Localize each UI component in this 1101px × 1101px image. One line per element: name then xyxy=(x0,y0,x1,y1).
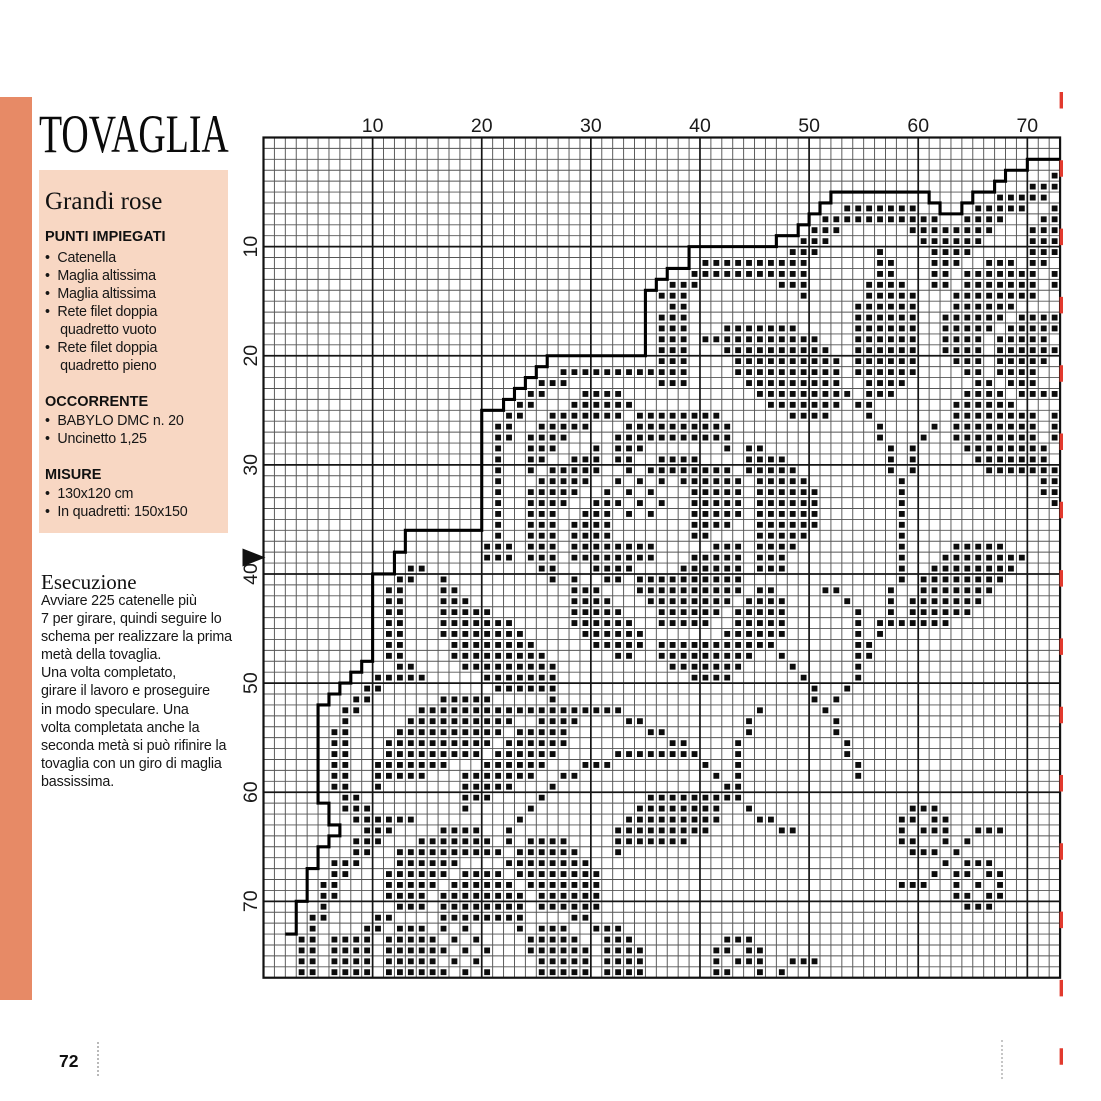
svg-text:50: 50 xyxy=(240,672,262,694)
svg-text:30: 30 xyxy=(580,115,602,137)
svg-text:50: 50 xyxy=(798,115,820,137)
svg-text:60: 60 xyxy=(240,781,262,803)
svg-text:10: 10 xyxy=(240,236,262,258)
svg-text:20: 20 xyxy=(240,345,262,367)
svg-text:40: 40 xyxy=(689,115,711,137)
svg-text:10: 10 xyxy=(362,115,384,137)
svg-text:70: 70 xyxy=(1016,115,1038,137)
svg-text:60: 60 xyxy=(907,115,929,137)
svg-text:70: 70 xyxy=(240,890,262,912)
svg-text:20: 20 xyxy=(471,115,493,137)
svg-text:40: 40 xyxy=(240,563,262,585)
svg-text:30: 30 xyxy=(240,454,262,476)
